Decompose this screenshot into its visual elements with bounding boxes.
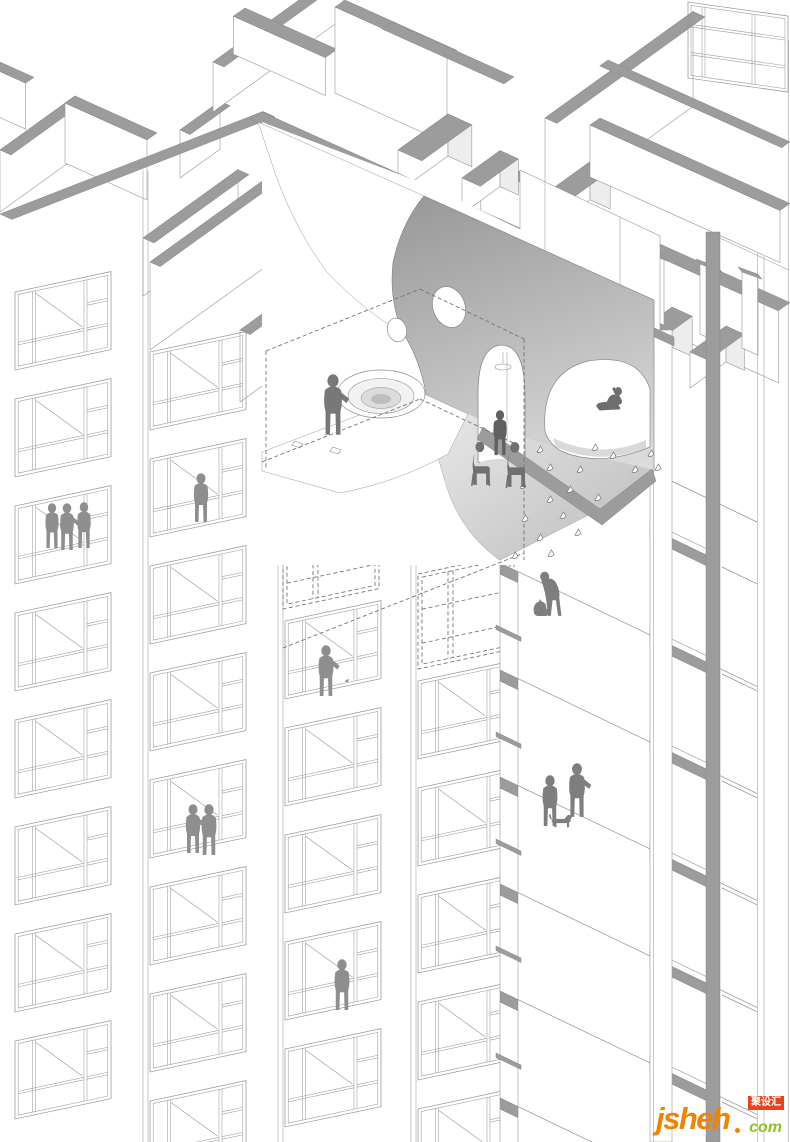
figure-stand xyxy=(543,775,558,826)
figure-stand2 xyxy=(569,763,591,817)
watermark-dot-icon xyxy=(735,1128,740,1133)
figure-bird xyxy=(345,679,350,683)
watermark-brand-text: jsheh xyxy=(656,1103,729,1134)
watermark-badge: 聚设汇 xyxy=(748,1096,784,1110)
top-right-window-grid xyxy=(688,2,788,92)
figure-stand2 xyxy=(60,503,79,550)
figure-stand xyxy=(202,804,217,855)
watermark-logo: jsheh 聚设汇 com xyxy=(656,1096,784,1136)
watermark-tld-text: com xyxy=(749,1120,782,1136)
axonometric-building-illustration xyxy=(0,0,790,1142)
architectural-drawing: jsheh 聚设汇 com xyxy=(0,0,790,1142)
sunken-funnel-bottom xyxy=(371,394,391,404)
figure-stand xyxy=(335,959,350,1010)
figure-stand xyxy=(194,473,208,522)
figure-stand xyxy=(45,503,58,548)
